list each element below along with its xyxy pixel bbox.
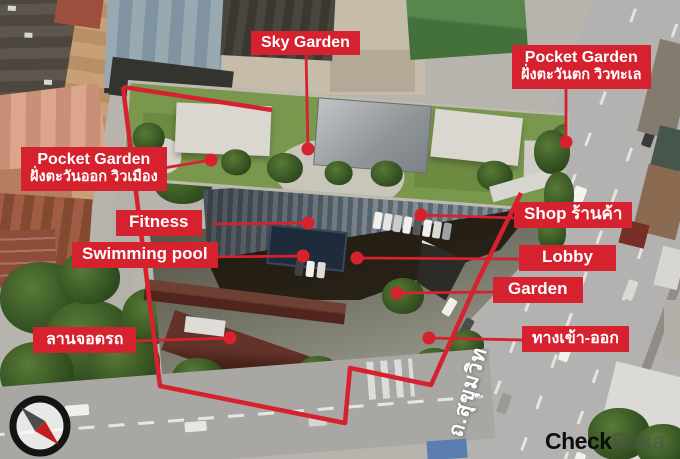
- vehicle: [402, 216, 413, 234]
- vehicle: [382, 213, 393, 231]
- garden-tree: [382, 278, 424, 314]
- callout-pocket-garden-east: Pocket Garden ฝั่งตะวันออก วิวเมือง: [21, 147, 167, 191]
- callout-sky-garden: Sky Garden: [251, 31, 360, 55]
- zebra-crossing: [366, 358, 415, 399]
- callout-swimming-pool: Swimming pool: [72, 242, 218, 268]
- vehicle: [496, 393, 512, 415]
- callout-garden: Garden: [493, 277, 583, 303]
- compass-glyph: [8, 394, 72, 458]
- callout-subtitle: ฝั่งตะวันออก วิวเมือง: [30, 169, 158, 186]
- roof-tree: [220, 148, 252, 176]
- watermark-prefix: Check: [545, 428, 612, 454]
- canopy: [430, 109, 523, 166]
- blue-tarp: [426, 439, 467, 459]
- vehicle: [308, 416, 327, 426]
- callout-entrance-exit: ทางเข้า-ออก: [522, 326, 629, 352]
- site-plan-image: Sky Garden Pocket Garden ฝั่งตะวันตก วิว…: [0, 0, 680, 459]
- roadside-tree: [534, 130, 570, 174]
- vehicle: [392, 215, 403, 233]
- callout-subtitle: ฝั่งตะวันตก วิวทะเล: [521, 67, 642, 84]
- vehicle: [294, 259, 304, 276]
- vehicle: [184, 421, 207, 433]
- gray-building: [664, 300, 680, 360]
- ground-patch: [330, 50, 415, 92]
- callout-lobby: Lobby: [519, 245, 616, 271]
- callout-pocket-garden-west: Pocket Garden ฝั่งตะวันตก วิวทะเล: [512, 45, 651, 89]
- callout-parking-lot: ลานจอดรถ: [33, 327, 136, 353]
- vehicle: [422, 219, 433, 237]
- green-gable-roof: [406, 0, 528, 60]
- compass-icon: [8, 394, 72, 458]
- callout-fitness: Fitness: [116, 210, 202, 236]
- roof-vents: [8, 6, 16, 11]
- vehicle: [316, 262, 326, 279]
- watermark-suffix: Raka: [612, 428, 665, 454]
- canopy: [175, 102, 272, 156]
- vehicle: [432, 221, 443, 239]
- checkraka-watermark: CheckRaka: [545, 428, 665, 455]
- vehicle: [622, 279, 638, 301]
- callout-shop: Shop ร้านค้า: [514, 202, 632, 228]
- vehicle: [372, 211, 383, 229]
- vehicle: [305, 261, 315, 278]
- vehicle: [442, 222, 453, 240]
- callout-title: Pocket Garden: [30, 150, 158, 169]
- callout-title: Pocket Garden: [521, 48, 642, 67]
- vehicle: [412, 218, 423, 236]
